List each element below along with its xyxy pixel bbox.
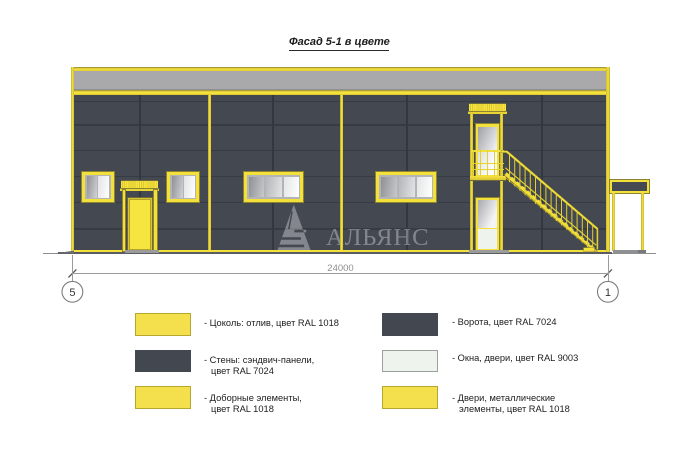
svg-text:1: 1 [605, 287, 611, 299]
svg-text:5: 5 [69, 287, 75, 299]
